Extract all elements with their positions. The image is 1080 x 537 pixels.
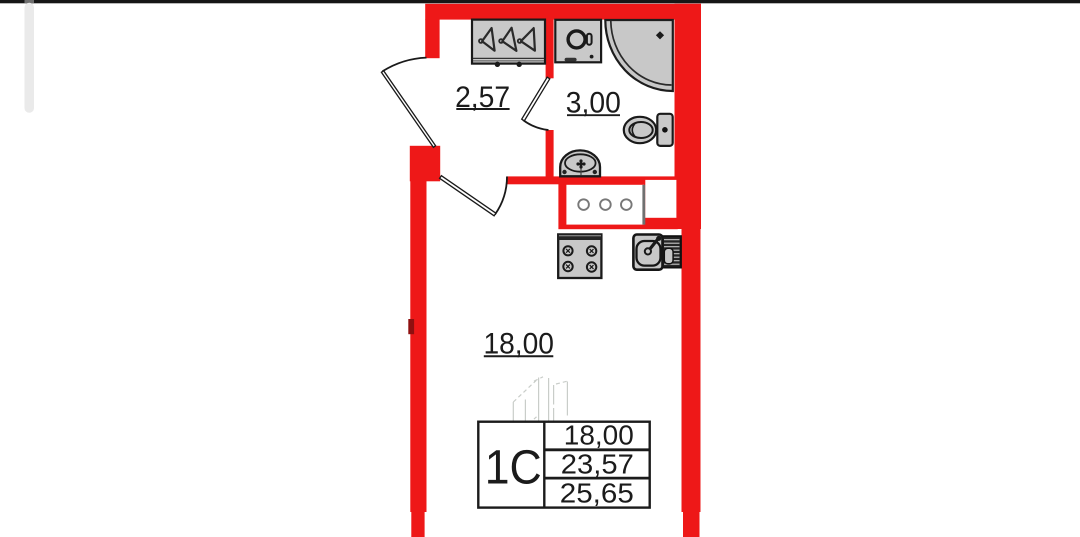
svg-text:25,65: 25,65 (560, 477, 634, 508)
svg-text:18,00: 18,00 (564, 420, 634, 451)
svg-text:1С: 1С (485, 441, 542, 494)
svg-text:23,57: 23,57 (561, 448, 634, 479)
